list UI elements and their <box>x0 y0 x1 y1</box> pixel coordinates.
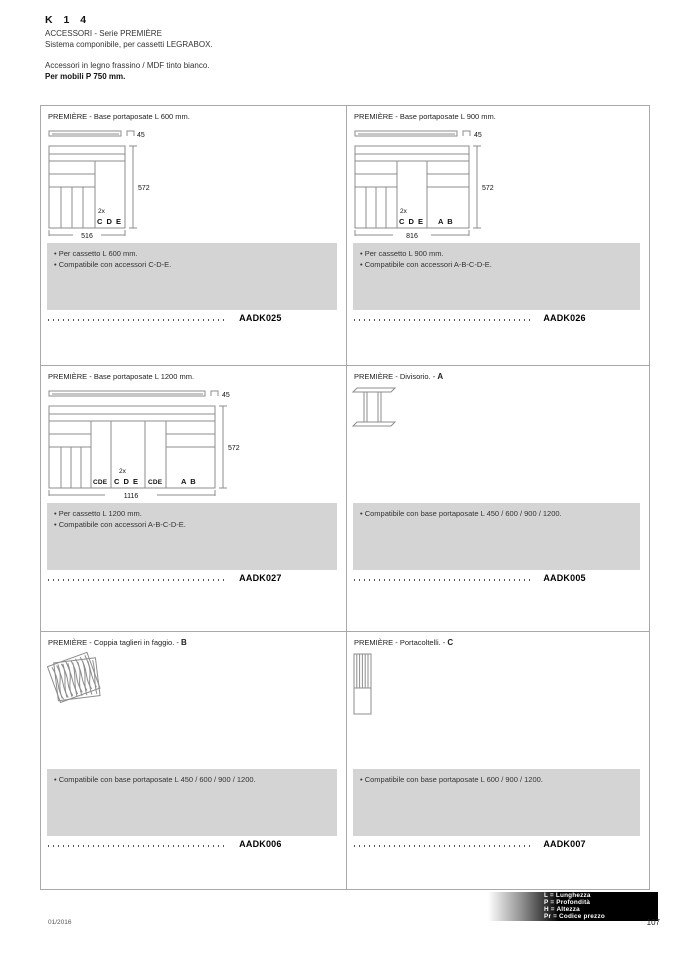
catalog-page: K 1 4 ACCESSORI - Serie PREMIÈRE Sistema… <box>0 0 678 959</box>
cutlery-tray-900-drawing: 45 2x C D E A B 572 <box>351 126 536 244</box>
knife-block-drawing <box>351 652 391 722</box>
product-title: PREMIÈRE - Portacoltelli. - C <box>354 638 643 647</box>
product-description: • Per cassetto L 1200 mm. • Compatibile … <box>47 503 337 570</box>
svg-text:2x: 2x <box>400 208 408 215</box>
order-code: AADK025 <box>239 313 281 323</box>
cutting-boards-drawing <box>43 648 123 712</box>
page-header: K 1 4 ACCESSORI - Serie PREMIÈRE Sistema… <box>45 14 213 82</box>
divider-drawing <box>351 384 421 439</box>
page-number: 107 <box>647 918 660 927</box>
svg-text:C D E: C D E <box>97 217 122 226</box>
svg-text:1116: 1116 <box>124 493 139 500</box>
product-cell-aadk026: PREMIÈRE - Base portaposate L 900 mm. 45… <box>347 106 649 366</box>
product-title: PREMIÈRE - Divisorio. - A <box>354 372 643 381</box>
order-code-row: AADK026 <box>354 313 640 323</box>
product-title: PREMIÈRE - Base portaposate L 600 mm. <box>48 112 340 121</box>
svg-text:CDE: CDE <box>148 479 163 486</box>
cabinet-depth-note: Per mobili P 750 mm. <box>45 72 213 83</box>
order-code: AADK006 <box>239 839 281 849</box>
order-code: AADK027 <box>239 573 281 583</box>
svg-text:572: 572 <box>138 185 150 192</box>
product-cell-aadk006: PREMIÈRE - Coppia taglieri in faggio. - … <box>41 632 347 889</box>
order-code-row: AADK007 <box>354 839 640 849</box>
order-code: AADK005 <box>543 573 585 583</box>
product-description: • Compatibile con base portaposate L 600… <box>353 769 640 836</box>
svg-text:2x: 2x <box>98 208 106 215</box>
dotted-leader <box>354 845 531 847</box>
svg-text:A B: A B <box>181 477 197 486</box>
order-code-row: AADK027 <box>48 573 337 583</box>
product-title: PREMIÈRE - Coppia taglieri in faggio. - … <box>48 638 340 647</box>
dotted-leader <box>354 579 531 581</box>
svg-text:572: 572 <box>482 185 494 192</box>
product-title: PREMIÈRE - Base portaposate L 1200 mm. <box>48 372 340 381</box>
series-subtitle: Sistema componibile, per cassetti LEGRAB… <box>45 40 213 51</box>
svg-text:C D E: C D E <box>114 477 139 486</box>
order-code: AADK007 <box>543 839 585 849</box>
legend-line-pr: Pr = Codice prezzo <box>544 914 658 921</box>
order-code-row: AADK006 <box>48 839 337 849</box>
svg-text:C D E: C D E <box>399 217 424 226</box>
order-code: AADK026 <box>543 313 585 323</box>
svg-text:CDE: CDE <box>93 479 108 486</box>
product-cell-aadk005: PREMIÈRE - Divisorio. - A • Compatibile … <box>347 366 649 632</box>
edition-date: 01/2016 <box>48 919 72 926</box>
svg-text:2x: 2x <box>119 468 127 475</box>
svg-text:816: 816 <box>406 233 418 240</box>
order-code-row: AADK025 <box>48 313 337 323</box>
svg-text:45: 45 <box>222 392 230 399</box>
svg-text:572: 572 <box>228 445 240 452</box>
dimension-legend: L = Lunghezza P = Profondità H = Altezza… <box>488 892 658 921</box>
product-grid: PREMIÈRE - Base portaposate L 600 mm. 45… <box>40 105 650 890</box>
svg-text:A B: A B <box>438 217 454 226</box>
product-description: • Compatibile con base portaposate L 450… <box>47 769 337 836</box>
cutlery-tray-1200-drawing: 45 CDE 2x C D E CDE A B <box>45 386 285 504</box>
svg-text:516: 516 <box>81 233 93 240</box>
dotted-leader <box>48 579 227 581</box>
cutlery-tray-600-drawing: 45 2x C D E 572 516 <box>45 126 210 244</box>
product-cell-aadk027: PREMIÈRE - Base portaposate L 1200 mm. 4… <box>41 366 347 632</box>
product-cell-aadk025: PREMIÈRE - Base portaposate L 600 mm. 45… <box>41 106 347 366</box>
dotted-leader <box>48 845 227 847</box>
section-code: K 1 4 <box>45 14 213 26</box>
product-cell-aadk007: PREMIÈRE - Portacoltelli. - C • Compatib… <box>347 632 649 889</box>
dotted-leader <box>354 319 531 321</box>
dotted-leader <box>48 319 227 321</box>
product-description: • Compatibile con base portaposate L 450… <box>353 503 640 570</box>
product-title: PREMIÈRE - Base portaposate L 900 mm. <box>354 112 643 121</box>
svg-text:45: 45 <box>474 132 482 139</box>
product-description: • Per cassetto L 900 mm. • Compatibile c… <box>353 243 640 310</box>
order-code-row: AADK005 <box>354 573 640 583</box>
product-description: • Per cassetto L 600 mm. • Compatibile c… <box>47 243 337 310</box>
series-title: ACCESSORI - Serie PREMIÈRE <box>45 29 213 40</box>
material-note: Accessori in legno frassino / MDF tinto … <box>45 61 213 72</box>
svg-text:45: 45 <box>137 132 145 139</box>
